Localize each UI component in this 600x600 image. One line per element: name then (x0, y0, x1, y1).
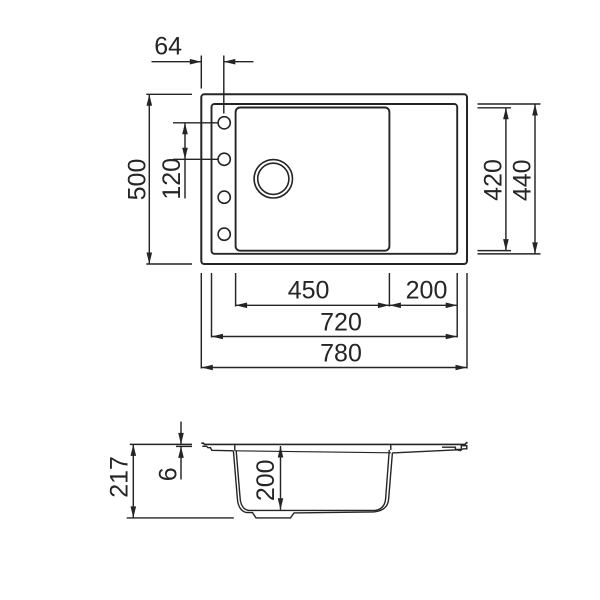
svg-text:780: 780 (320, 340, 362, 368)
svg-text:720: 720 (320, 308, 362, 336)
svg-text:500: 500 (123, 159, 151, 201)
svg-text:200: 200 (406, 277, 448, 305)
svg-text:420: 420 (480, 159, 508, 201)
svg-text:6: 6 (154, 467, 182, 481)
svg-text:440: 440 (509, 159, 537, 201)
svg-text:217: 217 (105, 456, 133, 498)
svg-text:200: 200 (252, 459, 280, 501)
svg-text:120: 120 (158, 158, 186, 200)
svg-text:64: 64 (154, 33, 182, 61)
svg-text:450: 450 (288, 277, 330, 305)
